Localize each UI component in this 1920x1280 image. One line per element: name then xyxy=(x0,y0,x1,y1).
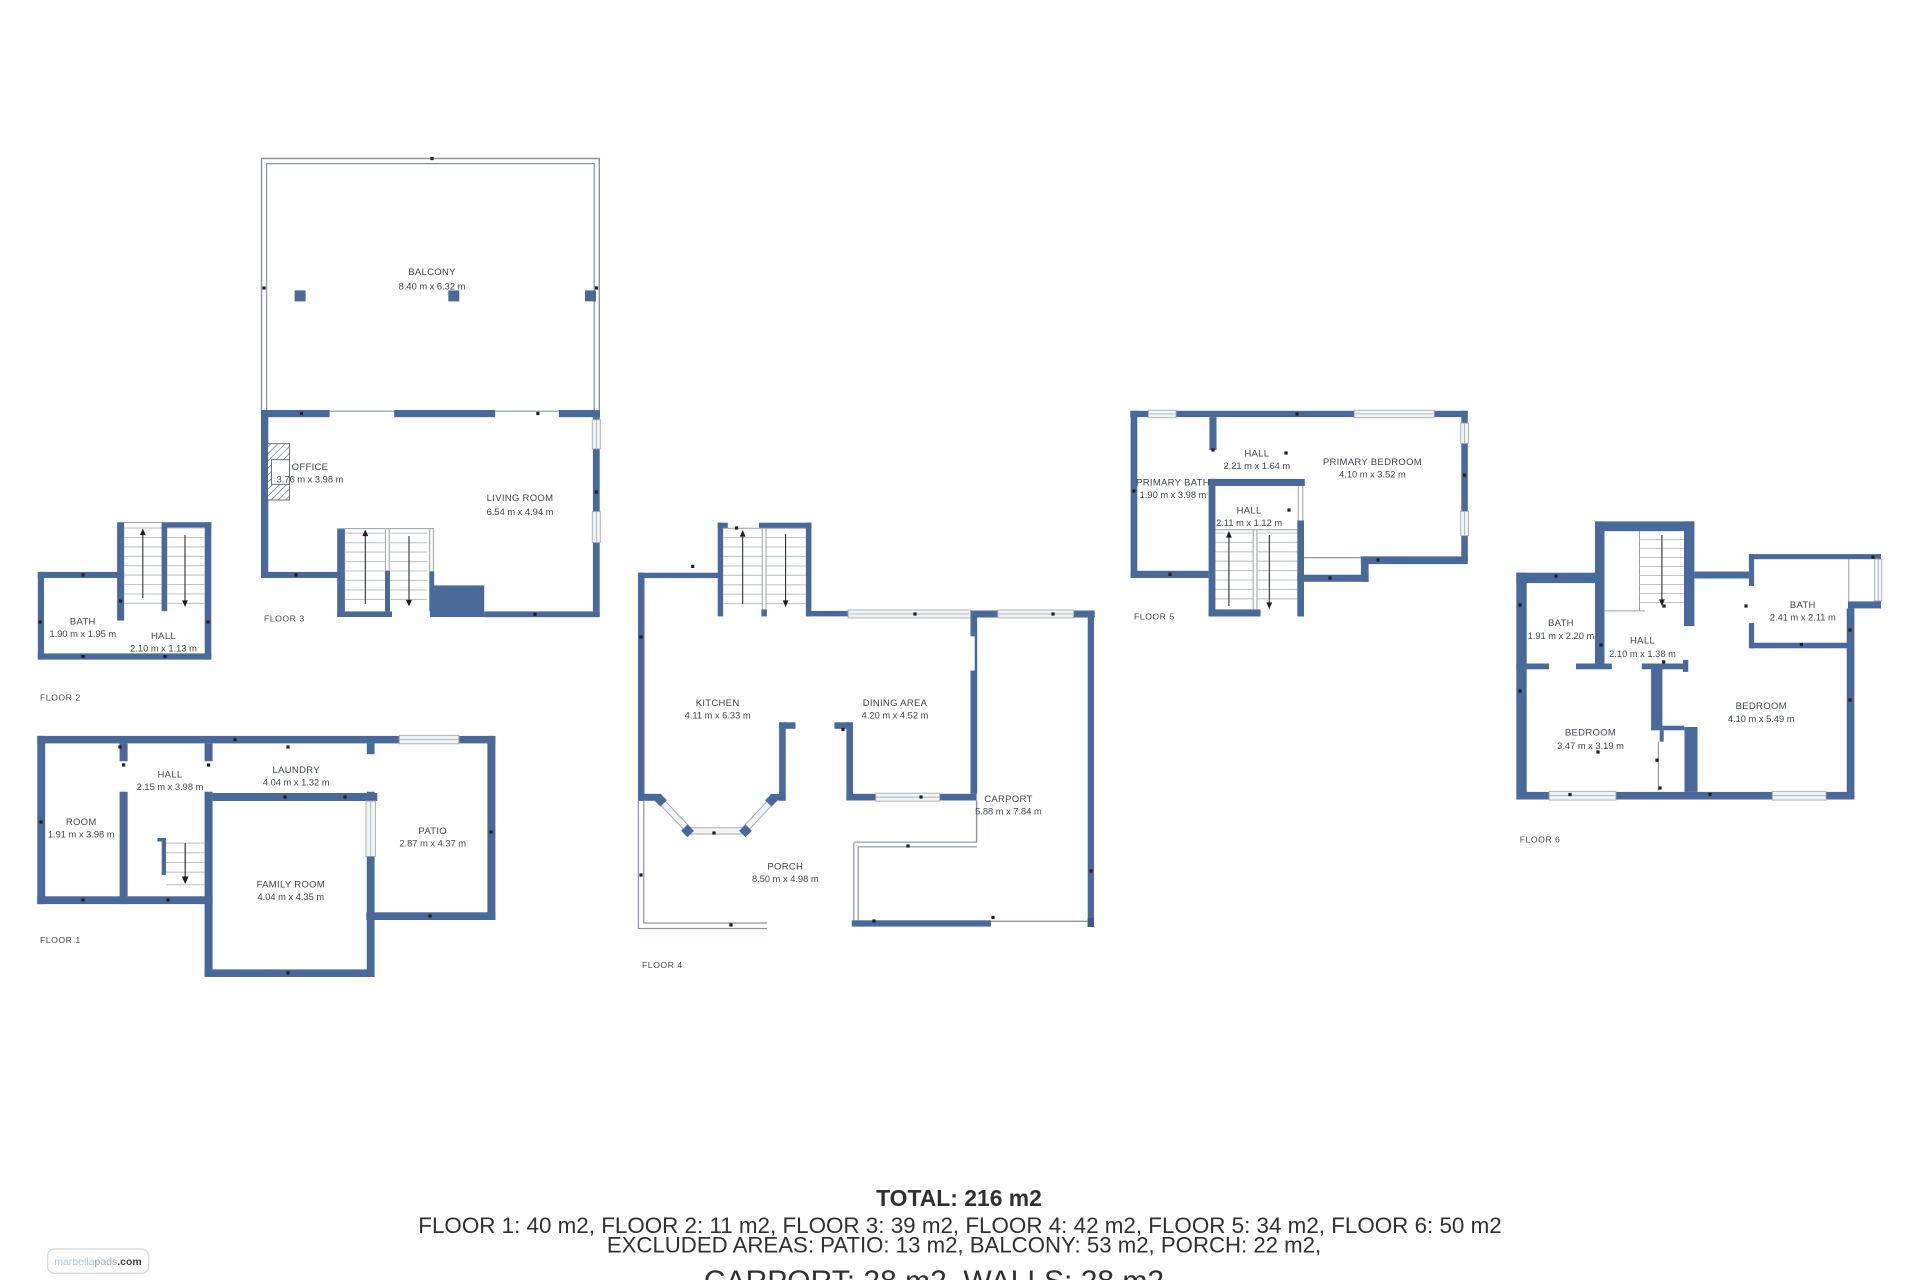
svg-text:2.15 m x 3.98 m: 2.15 m x 3.98 m xyxy=(137,782,204,792)
svg-text:DINING AREA: DINING AREA xyxy=(863,698,928,709)
svg-text:BATH: BATH xyxy=(1548,618,1574,629)
svg-text:FLOOR 6: FLOOR 6 xyxy=(1520,835,1561,845)
svg-text:2.41 m x 2.11 m: 2.41 m x 2.11 m xyxy=(1770,613,1836,623)
svg-text:1.91 m x 3.98 m: 1.91 m x 3.98 m xyxy=(48,830,115,840)
svg-text:FLOOR 5: FLOOR 5 xyxy=(1134,612,1175,622)
svg-text:OFFICE: OFFICE xyxy=(292,462,329,473)
svg-text:4.04 m x 4.35 m: 4.04 m x 4.35 m xyxy=(257,892,324,902)
svg-text:2.10 m x 1.38 m: 2.10 m x 1.38 m xyxy=(1609,649,1676,659)
svg-text:PRIMARY BEDROOM: PRIMARY BEDROOM xyxy=(1323,457,1422,468)
svg-text:6.54 m x 4.94 m: 6.54 m x 4.94 m xyxy=(487,507,554,517)
svg-text:PRIMARY BATH: PRIMARY BATH xyxy=(1136,478,1210,489)
svg-text:8.40 m x 6.32 m: 8.40 m x 6.32 m xyxy=(399,282,466,292)
svg-text:1.90 m x 1.95 m: 1.90 m x 1.95 m xyxy=(49,629,116,639)
svg-text:BEDROOM: BEDROOM xyxy=(1565,728,1616,739)
svg-text:4.11 m x 6.33 m: 4.11 m x 6.33 m xyxy=(685,711,751,721)
svg-text:HALL: HALL xyxy=(1244,449,1269,460)
svg-text:BEDROOM: BEDROOM xyxy=(1736,701,1787,712)
svg-text:PATIO: PATIO xyxy=(418,826,447,837)
svg-text:2.11 m x 1.12 m: 2.11 m x 1.12 m xyxy=(1216,518,1282,528)
svg-text:8.50 m x 4.98 m: 8.50 m x 4.98 m xyxy=(752,874,819,884)
svg-text:LAUNDRY: LAUNDRY xyxy=(273,765,321,776)
svg-text:FLOOR 2: FLOOR 2 xyxy=(40,693,81,703)
svg-text:HALL: HALL xyxy=(1237,506,1262,517)
svg-text:FAMILY ROOM: FAMILY ROOM xyxy=(257,880,325,891)
svg-text:CARPORT: 28 m2, WALLS: 28 m2: CARPORT: 28 m2, WALLS: 28 m2 xyxy=(704,1265,1164,1280)
svg-text:2.10 m x 1.13 m: 2.10 m x 1.13 m xyxy=(130,644,197,654)
svg-text:4.04 m x 1.32 m: 4.04 m x 1.32 m xyxy=(263,778,330,788)
svg-text:ROOM: ROOM xyxy=(66,817,97,828)
svg-text:FLOOR 3: FLOOR 3 xyxy=(264,614,305,624)
svg-text:PORCH: PORCH xyxy=(767,861,803,872)
svg-text:FLOOR 1: FLOOR 1 xyxy=(40,935,81,945)
svg-text:HALL: HALL xyxy=(1630,636,1655,647)
svg-text:CARPORT: CARPORT xyxy=(984,794,1032,805)
svg-text:HALL: HALL xyxy=(158,770,183,781)
svg-text:1.91 m x 2.20 m: 1.91 m x 2.20 m xyxy=(1528,631,1595,641)
svg-text:FLOOR 4: FLOOR 4 xyxy=(642,960,683,970)
svg-text:4.20 m x 4.52 m: 4.20 m x 4.52 m xyxy=(862,711,929,721)
svg-text:1.90 m x 3.98 m: 1.90 m x 3.98 m xyxy=(1140,490,1207,500)
svg-text:HALL: HALL xyxy=(151,631,176,642)
svg-text:4.10 m x 3.52 m: 4.10 m x 3.52 m xyxy=(1339,470,1406,480)
svg-text:TOTAL: 216 m2: TOTAL: 216 m2 xyxy=(876,1185,1042,1211)
svg-text:5.88 m x 7.84 m: 5.88 m x 7.84 m xyxy=(975,806,1042,816)
svg-text:marbellapads.com: marbellapads.com xyxy=(54,1256,142,1268)
svg-text:LIVING ROOM: LIVING ROOM xyxy=(487,493,554,504)
svg-text:BALCONY: BALCONY xyxy=(408,267,456,278)
svg-text:BATH: BATH xyxy=(70,616,96,627)
svg-text:3.47 m x 3.19 m: 3.47 m x 3.19 m xyxy=(1557,741,1624,751)
svg-text:BATH: BATH xyxy=(1790,600,1816,611)
svg-text:3.76 m x 3.98 m: 3.76 m x 3.98 m xyxy=(277,475,344,485)
svg-text:2.21 m x 1.64 m: 2.21 m x 1.64 m xyxy=(1223,461,1290,471)
svg-text:2.87 m x 4.37 m: 2.87 m x 4.37 m xyxy=(399,839,466,849)
svg-text:EXCLUDED AREAS: PATIO: 13 m2,: EXCLUDED AREAS: PATIO: 13 m2, BALCONY: 5… xyxy=(607,1233,1321,1258)
svg-text:4.10 m x 5.49 m: 4.10 m x 5.49 m xyxy=(1728,714,1795,724)
svg-text:KITCHEN: KITCHEN xyxy=(696,698,740,709)
